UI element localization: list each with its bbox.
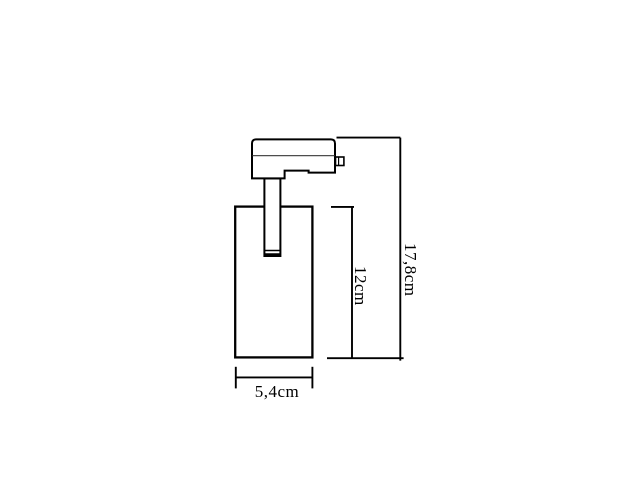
total-height-label: 17,8cm bbox=[402, 243, 419, 296]
stem-outline bbox=[264, 178, 280, 256]
knob-outline bbox=[336, 157, 344, 166]
stem bbox=[264, 178, 281, 256]
track-adapter bbox=[252, 139, 344, 178]
adapter-outline bbox=[252, 139, 335, 178]
body-width-label: 5,4cm bbox=[254, 383, 300, 400]
dimension-drawing-page: 17,8cm 12cm 5,4cm bbox=[0, 0, 630, 503]
body-height-label: 12cm bbox=[352, 266, 369, 303]
dimension-total-height bbox=[327, 138, 404, 361]
adapter-side-knob bbox=[336, 157, 344, 166]
fixture-drawing-svg bbox=[0, 0, 630, 503]
